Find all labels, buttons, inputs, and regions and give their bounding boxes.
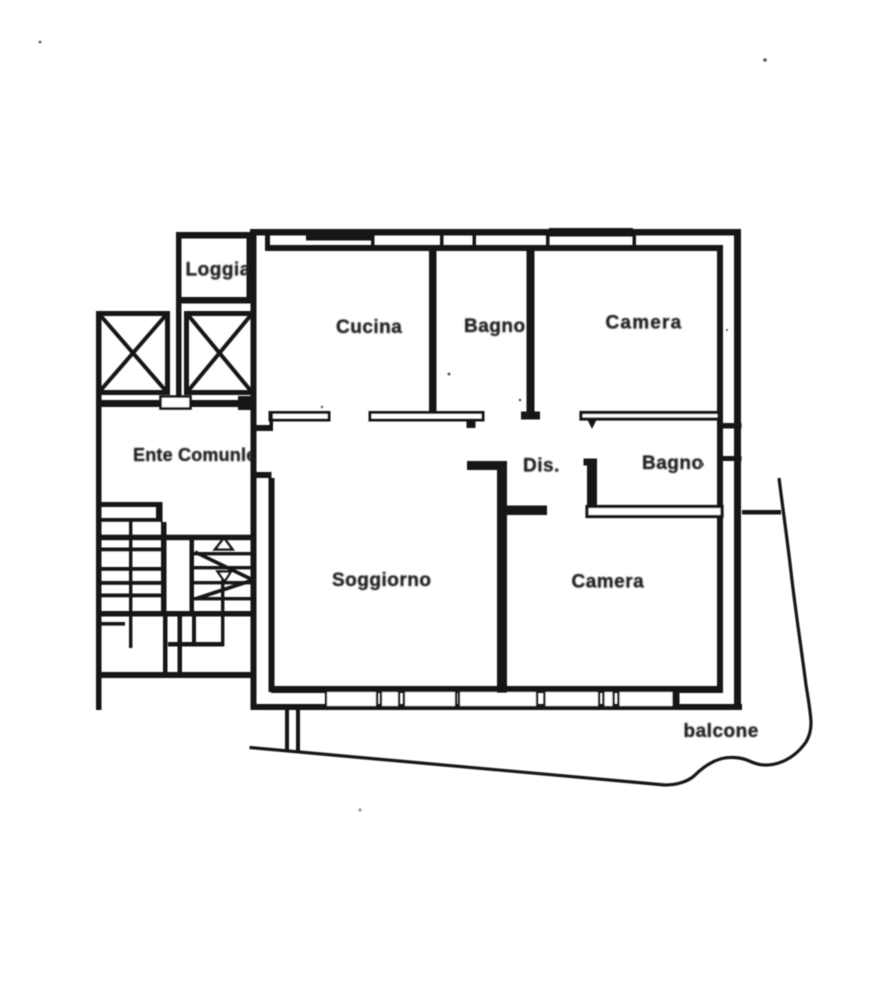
svg-text:Cucina: Cucina [336,317,402,338]
svg-text:Bagno: Bagno [642,453,704,474]
svg-text:Bagno: Bagno [464,316,526,337]
svg-text:Loggia: Loggia [186,260,251,281]
svg-text:Camera: Camera [572,572,645,593]
svg-text:Camera: Camera [606,313,683,334]
svg-text:Dis.: Dis. [523,456,560,477]
svg-text:Ente Comunle: Ente Comunle [133,445,256,465]
svg-text:balcone: balcone [684,721,759,742]
svg-text:Soggiorno: Soggiorno [332,570,431,591]
